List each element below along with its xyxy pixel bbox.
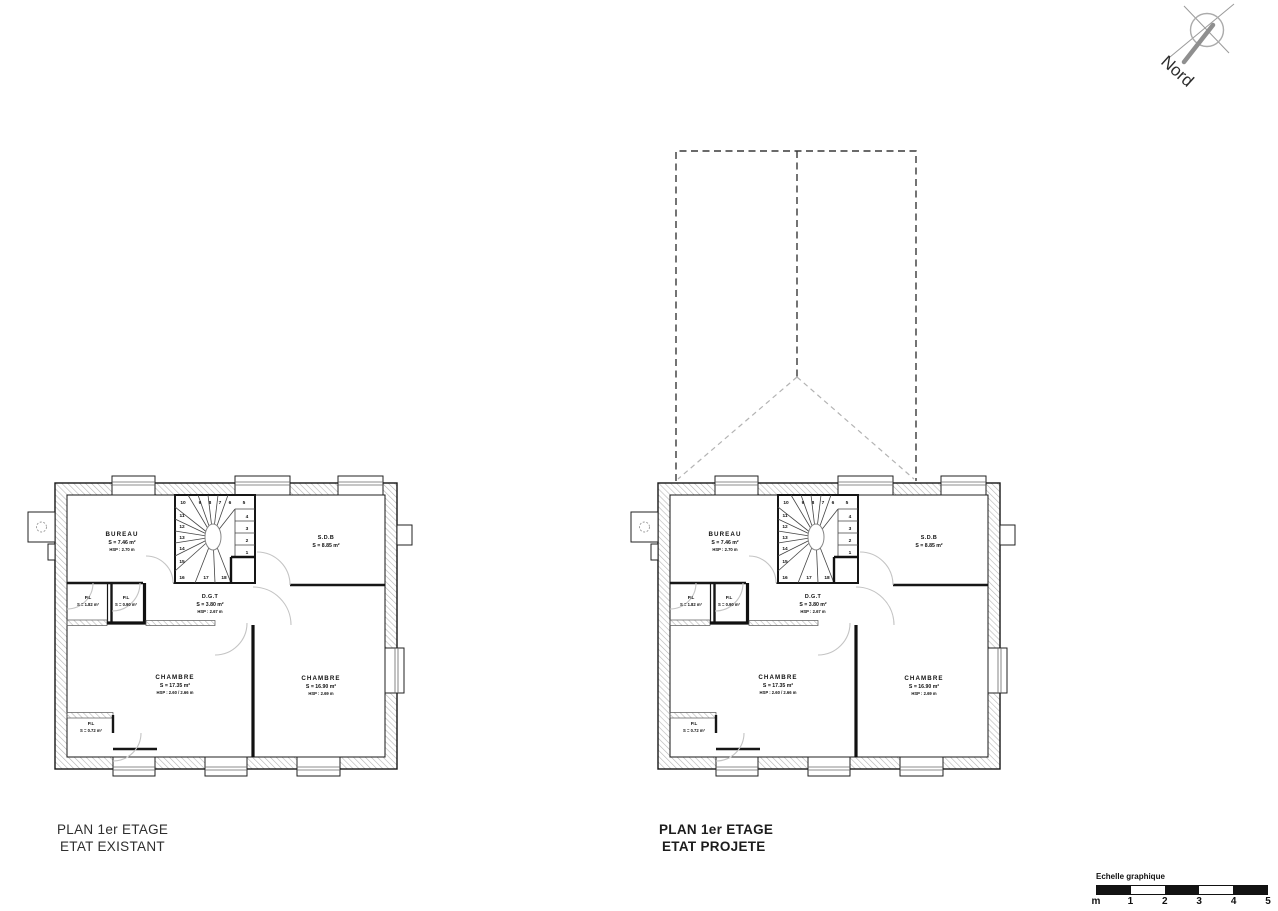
scale-tick: 4 xyxy=(1231,896,1237,907)
caption-existant-line2: ETAT EXISTANT xyxy=(57,838,168,855)
scale-tick: 2 xyxy=(1162,896,1168,907)
north-arrow: Nord xyxy=(1157,4,1234,91)
roof-outline-projete xyxy=(676,151,916,481)
scale-tick: m xyxy=(1092,896,1101,907)
caption-projete-line1: PLAN 1er ETAGE xyxy=(659,821,773,838)
north-label: Nord xyxy=(1157,52,1197,91)
caption-projete-line2: ETAT PROJETE xyxy=(659,838,773,855)
caption-etat-projete: PLAN 1er ETAGE ETAT PROJETE xyxy=(659,821,773,855)
scale-segment xyxy=(1233,886,1267,894)
scale-segment xyxy=(1131,886,1165,894)
scale-tick: 5 xyxy=(1265,896,1271,907)
drawing-canvas: 123456789101112131415161718 BUREAU S = 7… xyxy=(0,0,1278,911)
scale-tick: 3 xyxy=(1196,896,1202,907)
scale-tick: 1 xyxy=(1128,896,1134,907)
floorplan-etat-existant xyxy=(28,476,412,776)
caption-etat-existant: PLAN 1er ETAGE ETAT EXISTANT xyxy=(57,821,168,855)
floorplan-etat-projete xyxy=(631,476,1015,776)
scale-bar: Echelle graphique m 1 2 3 4 5 xyxy=(1096,872,1268,909)
caption-existant-line1: PLAN 1er ETAGE xyxy=(57,821,168,838)
scale-bar-segments xyxy=(1096,885,1268,895)
scale-segment xyxy=(1097,886,1131,894)
north-axis-line xyxy=(1170,4,1234,57)
scale-segment xyxy=(1199,886,1233,894)
scale-bar-label: Echelle graphique xyxy=(1096,872,1268,881)
north-needle xyxy=(1184,25,1213,62)
scale-segment xyxy=(1165,886,1199,894)
drawing-sheet: 123456789101112131415161718 BUREAU S = 7… xyxy=(0,0,1278,911)
scale-bar-ticks: m 1 2 3 4 5 xyxy=(1096,896,1268,909)
